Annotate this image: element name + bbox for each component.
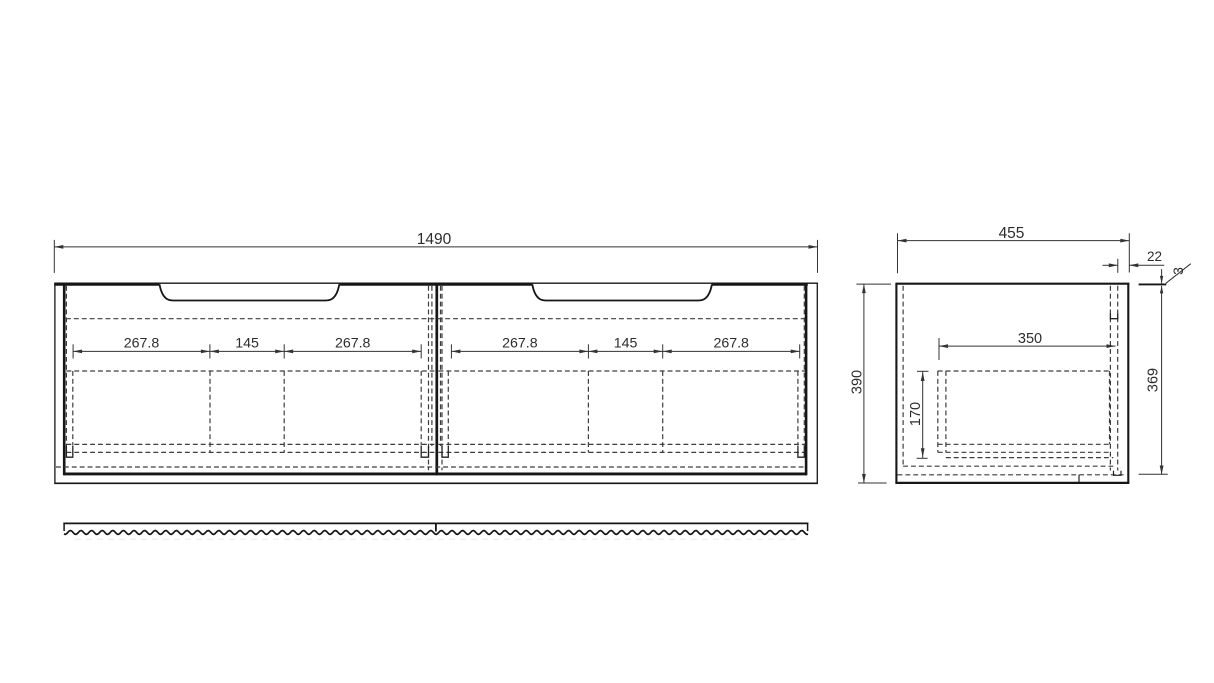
svg-text:390: 390 (850, 370, 866, 394)
svg-text:455: 455 (999, 225, 1025, 242)
svg-text:3: 3 (1170, 267, 1186, 275)
svg-text:145: 145 (614, 336, 638, 352)
svg-text:1490: 1490 (417, 231, 452, 248)
svg-text:22: 22 (1147, 249, 1162, 264)
svg-text:350: 350 (1018, 331, 1042, 347)
svg-text:267.8: 267.8 (713, 336, 749, 352)
svg-text:170: 170 (908, 402, 924, 426)
svg-text:267.8: 267.8 (335, 336, 371, 352)
svg-text:267.8: 267.8 (124, 336, 160, 352)
svg-text:145: 145 (235, 336, 259, 352)
svg-text:267.8: 267.8 (502, 336, 538, 352)
svg-text:369: 369 (1146, 368, 1162, 392)
